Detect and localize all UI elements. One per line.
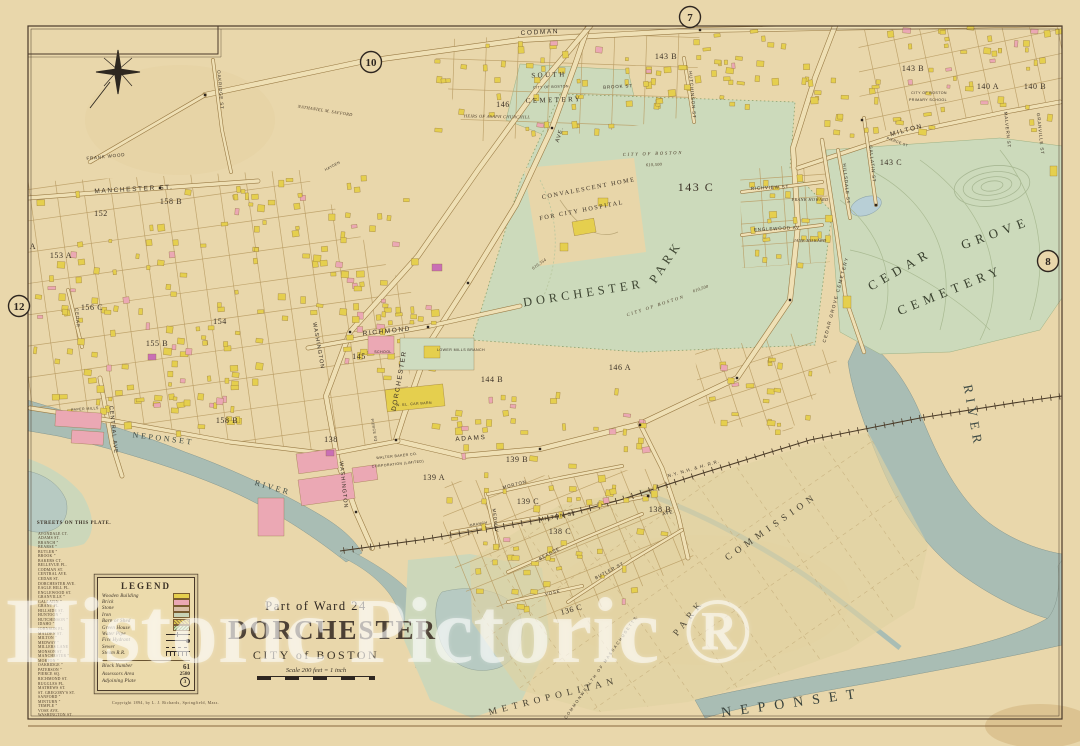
map-label: LOWER MILLS BRANCH	[437, 348, 485, 352]
street-list-item: WASHINGTON ST.	[38, 713, 112, 718]
map-label: FRANK HOWARD	[791, 197, 829, 202]
map-label: 146 A	[609, 363, 631, 372]
cedar-grove-cemetery-area	[826, 138, 1062, 354]
legend-facts: Block Number61Assessors Area2580Adjoinin…	[102, 660, 190, 686]
survey-monument-dot	[551, 127, 553, 129]
map-label: 143 B	[655, 52, 677, 61]
legend-symbol-ghouse-icon	[173, 625, 190, 631]
legend-fact-label: Adjoining Plate	[102, 679, 136, 684]
survey-monument-dot	[427, 326, 429, 328]
survey-monument-dot	[736, 377, 738, 379]
legend-row-label: Iron	[102, 613, 111, 618]
building	[55, 410, 102, 429]
map-label: SOUTH	[531, 70, 567, 79]
map-label: 158 B	[216, 416, 238, 425]
building	[71, 430, 104, 445]
copyright-line: Copyright 1894, by L. J. Richards, Sprin…	[112, 700, 219, 705]
adjoining-plate-number-7: 7	[680, 7, 701, 28]
building	[326, 450, 334, 456]
legend-row-label: Wooden Building	[102, 594, 139, 599]
legend-rows: Wooden BuildingBrickStoneIronBarn or She…	[102, 593, 190, 657]
legend-symbol-hyd-icon	[166, 640, 190, 641]
survey-monument-dot	[204, 94, 206, 96]
map-label: 138	[324, 435, 338, 444]
map-label: CITY OF BOSTON	[911, 91, 947, 95]
adjoining-plate-number-12: 12	[9, 296, 30, 317]
adjoining-plate-number-8: 8	[1038, 251, 1059, 272]
scale-bar	[257, 676, 375, 680]
legend-row-label: Fire Hydrant	[102, 638, 130, 643]
building	[560, 243, 568, 251]
legend-row-label: Sewer	[102, 645, 115, 650]
map-label: 138 C	[549, 527, 571, 536]
map-label: SCHOOL	[374, 350, 392, 354]
map-title: DORCHESTER	[228, 615, 404, 646]
legend-symbol-barn-icon	[173, 619, 190, 625]
building	[843, 296, 851, 308]
map-label: 139 A	[423, 473, 445, 482]
atlas-map-page: PLATE 9CODMANSOUTHCITY OF BOSTONCEMETERY…	[0, 0, 1080, 746]
legend-fact-label: Block Number	[102, 664, 133, 669]
legend-symbol-rail-icon	[166, 651, 190, 656]
ward-subtitle: Part of Ward 24	[228, 599, 404, 614]
building	[432, 264, 442, 271]
survey-monument-dot	[467, 282, 469, 284]
legend-row-label: Brick	[102, 600, 114, 605]
legend-panel: LEGEND Wooden BuildingBrickStoneIronBarn…	[97, 577, 195, 691]
map-label: 158 B	[160, 197, 182, 206]
map-label: 152	[94, 209, 108, 218]
map-label: 143 C	[880, 158, 902, 167]
map-label: 144 B	[481, 375, 503, 384]
map-label: 156 C	[81, 303, 103, 312]
legend-symbol-swatch-icon	[173, 606, 190, 612]
legend-symbol-swatch-icon	[173, 593, 190, 599]
legend-symbol-pipe-icon	[166, 634, 190, 635]
legend-symbol-sewer-icon	[166, 647, 190, 648]
legend-fact: Block Number61	[102, 663, 190, 671]
legend-symbol-swatch-icon	[173, 599, 190, 605]
survey-monument-dot	[539, 448, 541, 450]
map-label: 139 C	[517, 497, 539, 506]
svg-text:10: 10	[366, 57, 378, 69]
map-label: 143 C	[678, 180, 715, 194]
building	[1050, 166, 1057, 176]
map-label: 140 A	[977, 82, 999, 91]
map-title-block: Part of Ward 24 DORCHESTER CITY of BOSTO…	[228, 599, 404, 680]
svg-text:8: 8	[1045, 256, 1051, 268]
map-label: 145	[352, 352, 366, 361]
legend-row: Steam R.R.	[102, 651, 190, 657]
map-label: 139 B	[506, 455, 528, 464]
legend-fact: Assessors Area2580	[102, 671, 190, 679]
adjoining-plate-number-10: 10	[361, 52, 382, 73]
map-label: 154	[213, 317, 227, 326]
building	[258, 498, 284, 536]
map-label: 143 B	[902, 64, 924, 73]
legend-row-label: Water Pipe	[102, 632, 126, 637]
map-label: JANE HOWARD	[794, 238, 827, 243]
survey-monument-dot	[349, 331, 351, 333]
map-label: PRIMARY SCHOOL	[909, 98, 947, 102]
streets-panel-title: STREETS ON THIS PLATE.	[36, 521, 112, 528]
map-label: 140 B	[1024, 82, 1046, 91]
map-label: 146	[496, 100, 510, 109]
survey-monument-dot	[875, 204, 877, 206]
city-subtitle: CITY of BOSTON	[228, 648, 404, 663]
legend-row-label: Green House	[102, 626, 130, 631]
legend-fact-value: 3	[180, 677, 190, 687]
legend-fact-value: 61	[183, 663, 190, 671]
legend-title: LEGEND	[102, 581, 190, 591]
legend-row-label: Steam R.R.	[102, 651, 126, 656]
survey-monument-dot	[789, 299, 791, 301]
map-label: 153 A	[50, 251, 72, 260]
survey-monument-dot	[355, 511, 357, 513]
survey-monument-dot	[647, 495, 649, 497]
legend-row-label: Barn or Shed	[102, 619, 130, 624]
building	[148, 354, 156, 360]
svg-text:12: 12	[14, 301, 26, 313]
legend-fact: Adjoining Plate3	[102, 678, 190, 686]
survey-monument-dot	[639, 424, 641, 426]
scale-text: Scale 200 feet = 1 inch	[228, 667, 404, 674]
legend-fact-label: Assessors Area	[102, 672, 134, 677]
svg-text:7: 7	[687, 12, 693, 24]
legend-row-label: Stone	[102, 606, 114, 611]
survey-monument-dot	[861, 119, 863, 121]
map-label: 155 B	[146, 339, 168, 348]
survey-monument-dot	[395, 439, 397, 441]
legend-symbol-swatch-icon	[173, 612, 190, 618]
